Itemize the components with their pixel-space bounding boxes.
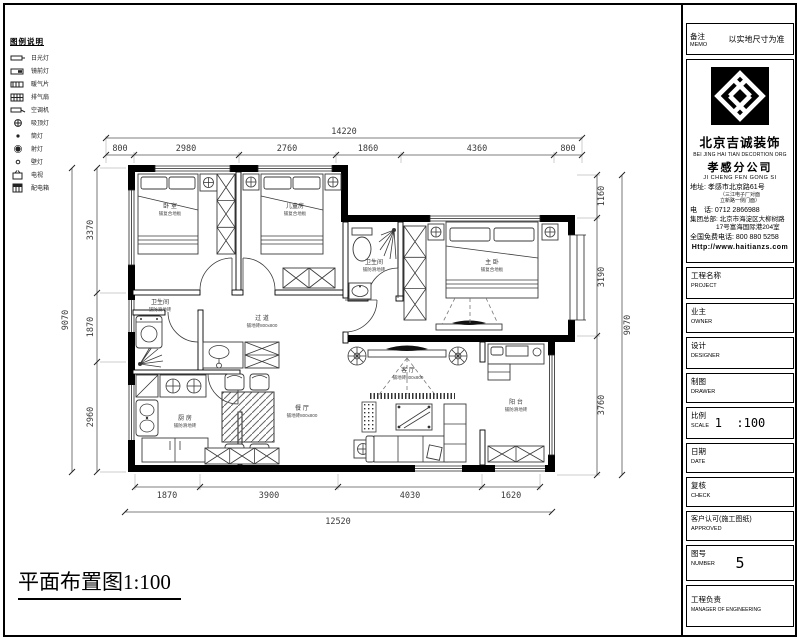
dimension-bottom: 1870 3900 4030 1620 12520 [122,474,555,527]
window-bed2 [258,165,332,172]
svg-text:12520: 12520 [325,517,351,527]
company-phone: 电 话: 0712 2866988 [687,204,793,215]
side-cabinet-icon [488,364,510,380]
window-left-bed1 [128,190,135,265]
svg-text:铺地砖800x800: 铺地砖800x800 [247,322,278,329]
room-label-dining: 餐 厅 [295,404,309,412]
room-label-bath2: 卫生间 [151,298,169,306]
field-designer: 设计 DESIGNER [686,337,794,369]
svg-text:铺防滑地砖: 铺防滑地砖 [149,306,172,313]
door-bed1 [200,258,232,290]
room-label-bed1: 卧 室 [163,202,177,210]
plant-icon [348,347,366,365]
field-manager: 工程负责 MANAGER OF ENGINEERING [686,585,794,627]
hall-cabinet-icon [245,342,279,368]
svg-text:2980: 2980 [176,144,196,154]
svg-text:14220: 14220 [331,127,357,137]
wardrobe-icon [404,226,426,320]
tv-cabinet-icon [368,346,446,358]
nightstand-lamp-icon [243,174,259,190]
sheet-number: 5 [687,554,793,572]
hall-furniture [203,342,279,368]
svg-text:4360: 4360 [467,144,487,154]
drawing-sheet: 图例说明 日光灯 镜前灯 暖气片 排气扇 空调机 吸顶灯 筒灯 射灯 壁灯 [0,0,800,640]
door-bath2 [168,312,198,342]
svg-text:9070: 9070 [623,315,633,335]
memo-text: 以实地尺寸为准 [720,34,793,45]
stove-icon [160,375,206,397]
svg-text:铺复合地板: 铺复合地板 [481,266,504,273]
plant-icon [449,347,467,365]
svg-text:铺地砖800x800: 铺地砖800x800 [393,374,424,381]
svg-text:1870: 1870 [86,317,96,337]
window-master [430,215,540,222]
company-website: Http://www.haitianzs.com [687,244,793,251]
field-approved: 客户认可(施工图纸) APPROVED [686,511,794,541]
company-name-en: BEI JING HAI TIAN DECORTION ORG [687,152,793,158]
shower-icon [379,228,396,259]
field-drawer: 制图 DRAWER [686,373,794,403]
svg-text:3900: 3900 [259,491,279,501]
kitchen-furniture [136,375,208,462]
company-name: 北京吉诚装饰 [687,132,793,151]
svg-text:9070: 9070 [61,310,71,330]
memo-box: 备注 MEMO 以实地尺寸为准 [686,23,794,55]
company-logo-icon [711,67,769,125]
nightstand-lamp-icon [200,174,217,191]
floor-plan: 卧 室 铺复合地板 儿童房 铺复合地板 卫生间 铺防滑地砖 主 卧 铺复合地板 … [0,0,680,640]
bay-window [568,235,586,320]
dining-furniture [205,374,279,464]
scale-value: 1 :100 [687,416,793,430]
field-project: 工程名称 PROJECT [686,267,794,299]
svg-text:4030: 4030 [400,491,420,501]
svg-text:铺防滑地砖: 铺防滑地砖 [363,266,386,273]
chair-icon [225,374,244,390]
rug-icon [362,402,376,432]
nightstand-lamp-icon [325,174,341,190]
svg-text:800: 800 [560,144,575,154]
svg-text:1870: 1870 [157,491,177,501]
window-bottom-living [415,465,462,472]
bed2-furniture [243,174,341,288]
dimension-top: 14220 800 2980 2760 1860 4360 800 [103,127,585,163]
room-label-mbed: 主 卧 [485,258,499,266]
coffee-table-icon [396,404,432,430]
svg-text:800: 800 [112,144,127,154]
svg-text:3760: 3760 [597,395,607,415]
door-bed2 [243,258,275,290]
company-branch: 孝感分公司 [687,159,793,175]
field-owner: 业主 OWNER [686,303,794,333]
balcony-cabinet-icon [488,446,544,462]
window-bottom-balcony [495,465,545,472]
nightstand-lamp-icon [542,224,558,240]
chair-icon [250,374,269,390]
svg-text:3190: 3190 [597,267,607,287]
window-left-bath [128,300,135,332]
balcony-rail [548,355,555,455]
svg-text:铺地砖800x800: 铺地砖800x800 [287,412,318,419]
company-box: 北京吉诚装饰 BEI JING HAI TIAN DECORTION ORG 孝… [686,59,794,263]
nightstand-lamp-icon [428,224,444,240]
low-cabinet-icon [283,268,335,288]
field-date: 日期 DATE [686,443,794,473]
window-left-kitchen [128,385,135,440]
dimension-left: 3370 1870 2960 9070 [61,165,126,475]
title-block: 备注 MEMO 以实地尺寸为准 北京吉诚装饰 BEI JING HAI TIAN… [681,5,797,635]
svg-text:铺防滑地砖: 铺防滑地砖 [174,422,197,429]
room-label-balcony: 阳 台 [509,398,523,406]
company-hq: 集团总部: 北京市海淀区大柳树路 17号富海国际港204室 [687,215,793,231]
memo-label-en: MEMO [690,42,720,48]
bed1-furniture [138,174,235,254]
wardrobe-icon [217,174,235,254]
svg-text:2960: 2960 [86,407,96,427]
sink-icon [136,400,158,436]
svg-text:铺复合地板: 铺复合地板 [159,210,182,217]
field-check: 复核 CHECK [686,477,794,507]
svg-text:3370: 3370 [86,220,96,240]
toilet-icon [352,228,372,261]
master-bed-furniture [404,222,558,330]
company-address: 地址: 孝感市北京路61号 [687,181,793,192]
svg-text:1160: 1160 [597,186,607,206]
company-hotline: 全国免费电话: 800 880 5258 [687,231,793,242]
svg-text:2760: 2760 [277,144,297,154]
memo-label-cn: 备注 [690,31,720,42]
room-label-hall: 过 道 [255,314,269,322]
room-label-mbath: 卫生间 [365,258,383,266]
washing-machine-icon [136,316,162,348]
fridge-icon [142,438,208,462]
window-bed1 [155,165,230,172]
room-label-kitchen: 厨 房 [178,414,192,422]
dining-table-icon [222,392,274,442]
door-master-bath [368,268,398,298]
tv-icon [436,321,502,331]
living-furniture [348,346,467,463]
svg-text:铺复合地板: 铺复合地板 [284,210,307,217]
washbasin-icon [349,283,371,299]
corner-cabinet-icon [136,375,158,397]
field-scale: 比例 SCALE 1 :100 [686,407,794,439]
bath2-furniture [136,316,163,367]
room-label-bed2: 儿童房 [286,202,304,210]
console-basin-icon [203,342,243,368]
bench-icon [488,344,544,364]
plan-title: 平面布置图1:100 [18,566,181,600]
field-number: 图号 NUMBER 5 [686,545,794,581]
svg-text:1860: 1860 [358,144,378,154]
svg-text:1620: 1620 [501,491,521,501]
room-label-living: 客 厅 [401,366,415,374]
svg-text:铺防滑地砖: 铺防滑地砖 [505,406,528,413]
sideboard-icon [205,448,279,464]
door-master-entry [345,300,377,332]
